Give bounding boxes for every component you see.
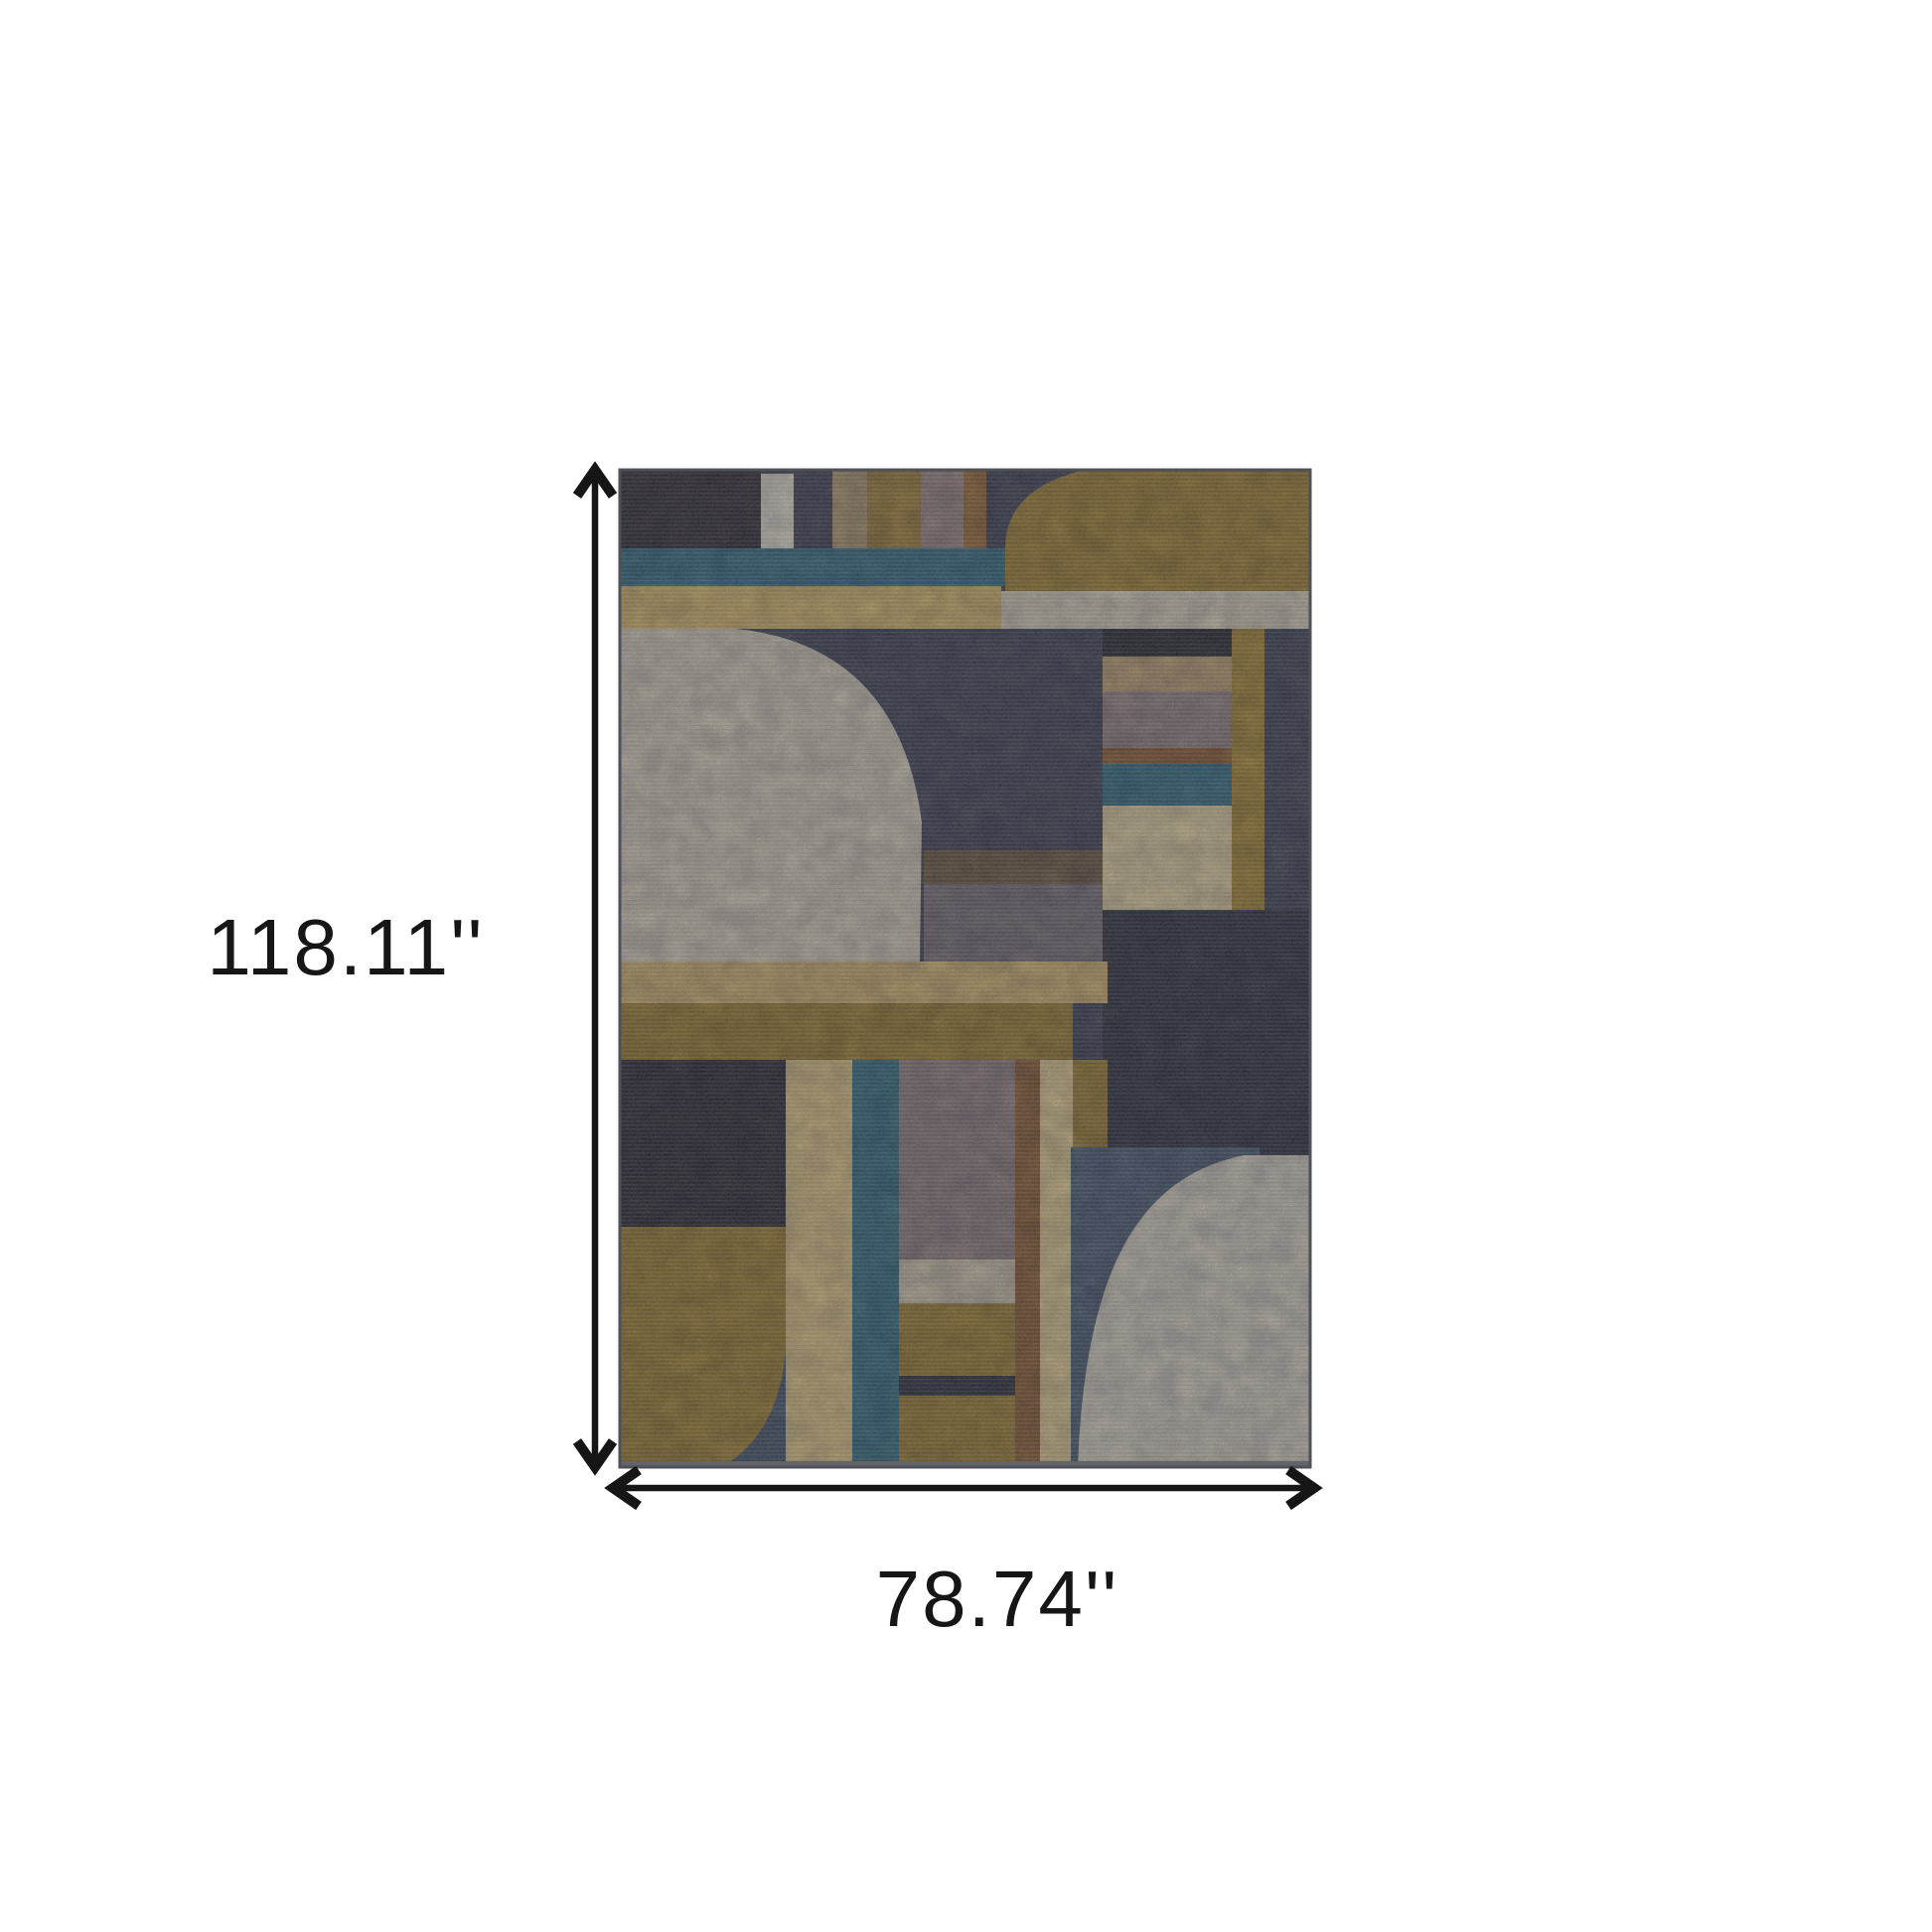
rug-image	[620, 470, 1310, 1467]
product-dimension-figure: 118.11'' 78.74''	[0, 0, 1932, 1932]
height-dimension-label: 118.11''	[207, 903, 484, 991]
rug-dimension-diagram: 118.11'' 78.74''	[0, 0, 1932, 1932]
width-dimension-label: 78.74''	[876, 1555, 1119, 1643]
rug-grain-blotch	[620, 470, 1310, 1467]
